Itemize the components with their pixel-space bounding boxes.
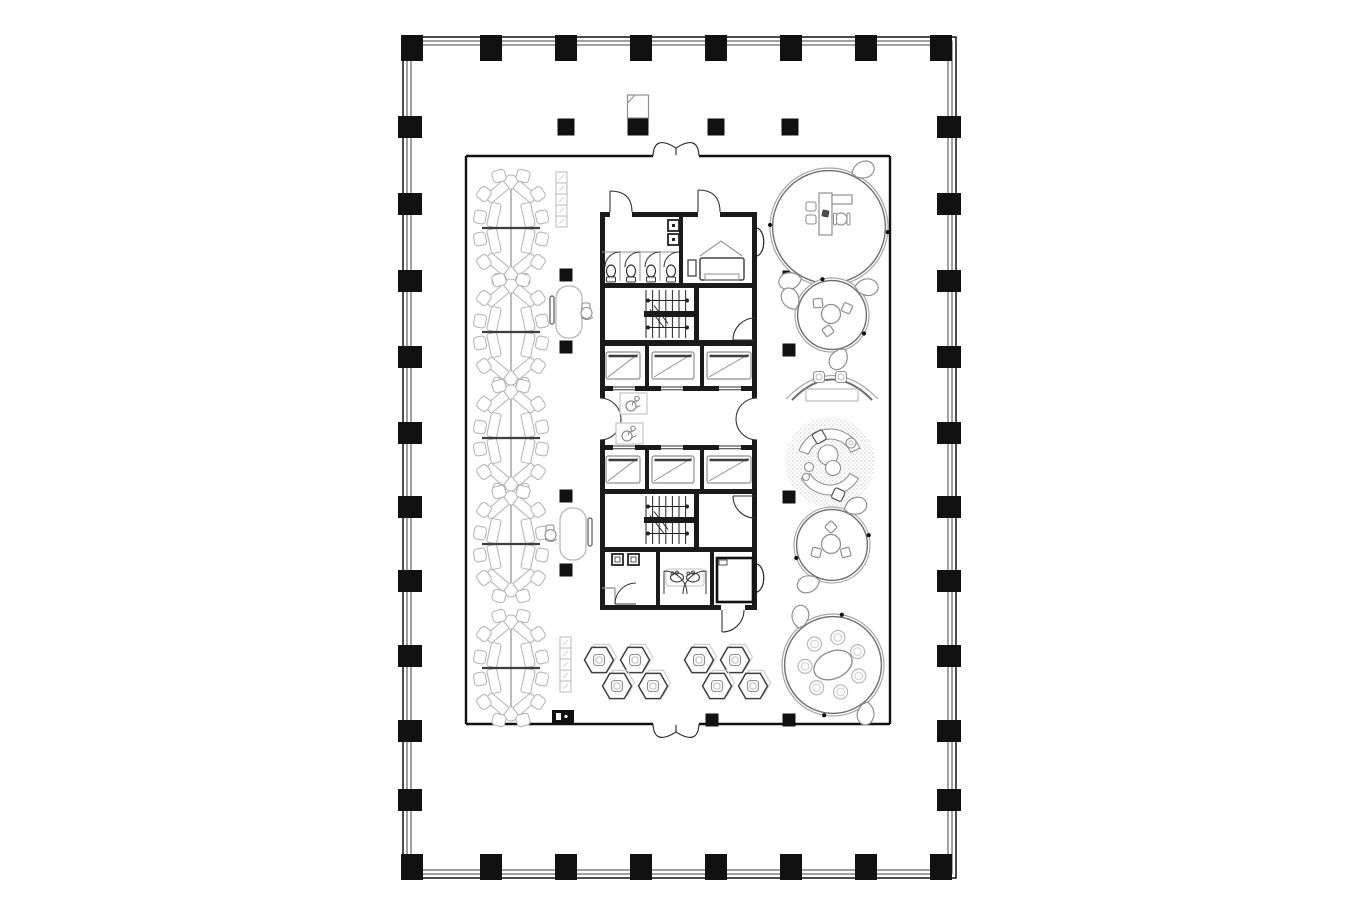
hinge-dot [794, 556, 798, 560]
floor-plan-page [0, 0, 1360, 900]
booth-panel [588, 518, 592, 546]
accessible-wc-symbol [620, 393, 647, 414]
core-wall [710, 552, 714, 605]
column [937, 645, 961, 667]
chair [491, 609, 507, 624]
chair [473, 232, 487, 247]
chair [748, 681, 759, 692]
accessible-wc-symbol [616, 423, 643, 444]
chair [515, 379, 531, 394]
chair [810, 681, 824, 695]
column [937, 496, 961, 518]
column [398, 789, 422, 811]
chair [535, 672, 549, 687]
round-table [822, 305, 841, 324]
chair [473, 314, 487, 329]
chair [594, 655, 605, 666]
chair [535, 420, 549, 435]
column [705, 35, 727, 61]
column [560, 341, 573, 354]
chair [834, 685, 848, 699]
column [937, 789, 961, 811]
column [401, 854, 423, 880]
booth-shell [556, 286, 582, 338]
column [706, 714, 719, 727]
monitor [821, 209, 829, 217]
wall-fixture [552, 710, 574, 723]
chair [515, 589, 531, 604]
desk-cluster [473, 379, 549, 498]
stool [814, 372, 825, 383]
toilet [647, 265, 656, 277]
chair [473, 650, 487, 665]
column [708, 119, 725, 136]
chair [730, 655, 741, 666]
chair [491, 169, 507, 184]
chair [491, 379, 507, 394]
locker-strip [556, 172, 567, 227]
desk-return [832, 195, 852, 204]
hinge-dot [840, 613, 844, 617]
chair [831, 630, 845, 644]
column [855, 35, 877, 61]
column [628, 119, 649, 136]
column [780, 854, 802, 880]
column [398, 720, 422, 742]
hinge-dot [886, 230, 890, 234]
column [783, 714, 796, 727]
core-wall [694, 494, 699, 547]
urinal [612, 554, 623, 565]
chair [491, 485, 507, 500]
column [398, 193, 422, 215]
column [398, 346, 422, 368]
chair [473, 420, 487, 435]
side-table [846, 438, 856, 448]
guest-chair [806, 202, 816, 211]
column [937, 116, 961, 138]
toilet [627, 265, 636, 277]
equipment [700, 258, 744, 280]
chair [798, 659, 812, 673]
column [480, 35, 502, 61]
desk-cluster [473, 273, 549, 392]
core-wall [600, 283, 757, 288]
core-wall [600, 340, 757, 346]
hinge-dot [768, 223, 772, 227]
column [560, 564, 573, 577]
lounge-circle [785, 417, 875, 507]
chair [851, 645, 865, 659]
column [930, 35, 952, 61]
column [398, 570, 422, 592]
chair [473, 210, 487, 225]
hinge-dot [820, 277, 824, 281]
chair [852, 669, 866, 683]
chair [807, 637, 821, 651]
column [937, 720, 961, 742]
column [630, 35, 652, 61]
column [555, 854, 577, 880]
table [806, 389, 858, 401]
chair [535, 336, 549, 351]
column [783, 344, 796, 357]
column [937, 346, 961, 368]
fire-equipment-cabinet [552, 710, 574, 723]
toilet [607, 265, 616, 277]
core-wall [694, 288, 699, 340]
guest-chair [806, 215, 816, 224]
chair [473, 672, 487, 687]
booth-shell [560, 508, 586, 560]
column [560, 490, 573, 503]
hinge-dot [862, 331, 866, 335]
chair [535, 442, 549, 457]
chair [515, 169, 531, 184]
core-wall [600, 547, 757, 552]
column [855, 854, 877, 880]
chair [630, 655, 641, 666]
column [401, 35, 423, 61]
column-with-cabinet [628, 95, 649, 136]
hinge-dot [867, 533, 871, 537]
chair [612, 681, 623, 692]
column [780, 35, 802, 61]
desk-cluster [473, 485, 549, 604]
column [558, 119, 575, 136]
chair [491, 589, 507, 604]
desk-cluster [473, 169, 549, 288]
round-table [822, 535, 841, 554]
column [555, 35, 577, 61]
column [398, 422, 422, 444]
chair [491, 713, 507, 728]
column [930, 854, 952, 880]
chair [712, 681, 723, 692]
booth-panel [550, 296, 554, 324]
column [560, 269, 573, 282]
column [705, 854, 727, 880]
urinal [628, 554, 639, 565]
fixture [688, 260, 696, 276]
column [937, 570, 961, 592]
column [783, 491, 796, 504]
chair [813, 298, 823, 308]
hinge-dot [822, 713, 826, 717]
column [398, 645, 422, 667]
column [398, 116, 422, 138]
column [398, 270, 422, 292]
core-wall [700, 450, 704, 489]
chair [473, 548, 487, 563]
chair [491, 273, 507, 288]
core-wall [645, 346, 649, 386]
chair [515, 485, 531, 500]
booth-chair [581, 308, 592, 319]
chair [473, 336, 487, 351]
core-wall [656, 552, 660, 605]
stool [836, 372, 847, 383]
chair [515, 273, 531, 288]
column [937, 270, 961, 292]
chair [515, 609, 531, 624]
chair [535, 650, 549, 665]
column [937, 193, 961, 215]
locker-strip [560, 637, 571, 692]
wall-cabinet [628, 95, 649, 118]
floor-plan-drawing [0, 0, 1360, 900]
core-wall [700, 346, 704, 386]
column [630, 854, 652, 880]
column [782, 119, 799, 136]
column [398, 496, 422, 518]
core-wall [645, 450, 649, 489]
chair [473, 442, 487, 457]
core-wall [600, 489, 757, 494]
chair [694, 655, 705, 666]
chair [535, 548, 549, 563]
booth-chair [545, 530, 556, 541]
chair [473, 526, 487, 541]
chair [840, 547, 851, 558]
chair [811, 547, 822, 558]
desk-cluster [473, 609, 549, 728]
column [480, 854, 502, 880]
chair [535, 314, 549, 329]
chair [648, 681, 659, 692]
toilet [667, 265, 676, 277]
column [937, 422, 961, 444]
chair [515, 713, 531, 728]
chair [535, 232, 549, 247]
chair [535, 210, 549, 225]
